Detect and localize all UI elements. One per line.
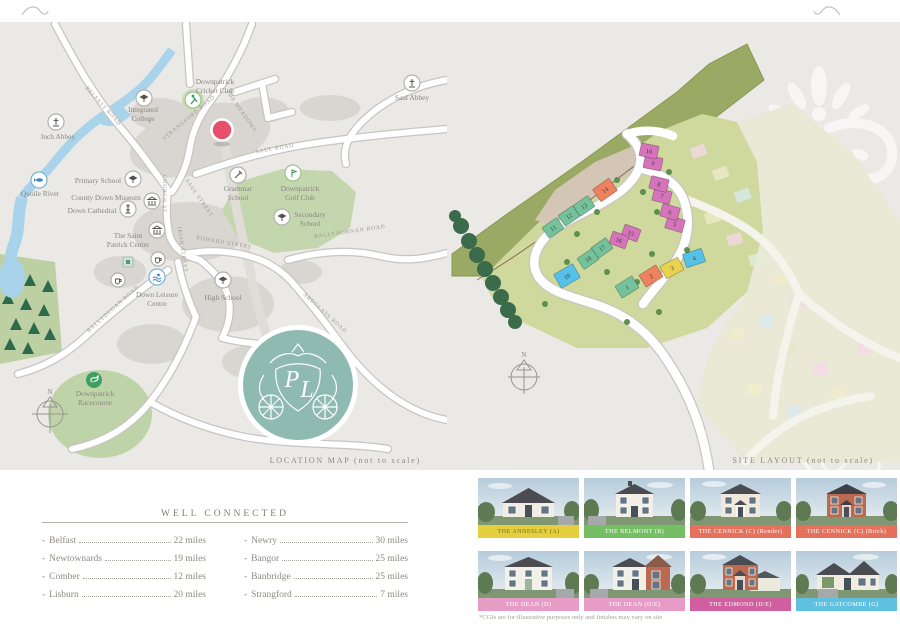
distance-column-left: - Belfast 22 miles - Newtownards 19 mile… [42, 532, 206, 604]
school-icon [136, 90, 152, 106]
house-type-label: THE GATCOMBE (G) [796, 598, 897, 611]
distance-row: - Newtownards 19 miles [42, 550, 206, 568]
house-render-image [584, 478, 685, 525]
house-render-image [796, 551, 897, 598]
svg-text:Down Cathedral: Down Cathedral [68, 206, 117, 215]
svg-text:Secondary: Secondary [294, 210, 325, 219]
distance-row: - Belfast 22 miles [42, 532, 206, 550]
svg-text:Racecourse: Racecourse [78, 398, 113, 407]
distance-value: 7 miles [380, 586, 408, 604]
place-name: Newtownards [49, 550, 102, 568]
svg-text:Golf Club: Golf Club [285, 193, 315, 202]
house-type-label: THE BELMONT (B) [584, 525, 685, 538]
distance-row: - Banbridge 25 miles [244, 568, 408, 586]
house-render-image [584, 551, 685, 598]
place-name: Newry [251, 532, 277, 550]
distance-row: - Strangford 7 miles [244, 586, 408, 604]
svg-text:Inch Abbey: Inch Abbey [41, 132, 76, 141]
horse-icon [86, 372, 102, 388]
house-types-grid: THE ANNESLEY (A) THE BELMONT (B) [478, 478, 897, 611]
distance-value: 25 miles [376, 568, 408, 586]
distance-value: 20 miles [174, 586, 206, 604]
svg-text:L: L [299, 377, 313, 403]
svg-text:County Down Museum: County Down Museum [71, 193, 141, 202]
house-type-card-cennick-render: THE CENNICK (C) (Render) [690, 478, 791, 538]
svg-text:Downpatrick: Downpatrick [76, 389, 115, 398]
swim-icon [149, 269, 165, 285]
golf-icon [285, 165, 301, 181]
distance-value: 25 miles [376, 550, 408, 568]
place-name: Comber [49, 568, 80, 586]
house-type-card-annesley: THE ANNESLEY (A) [478, 478, 579, 538]
fish-icon [31, 172, 47, 188]
school-icon [125, 171, 141, 187]
house-render-image [478, 478, 579, 525]
svg-text:The Saint: The Saint [114, 231, 143, 240]
svg-text:Saul Abbey: Saul Abbey [395, 93, 430, 102]
distance-column-right: - Newry 30 miles - Bangor 25 miles - Ban… [244, 532, 408, 604]
svg-text:Patrick Centre: Patrick Centre [107, 240, 150, 249]
place-name: Banbridge [251, 568, 291, 586]
svg-text:P: P [284, 367, 300, 393]
svg-text:Downpatrick: Downpatrick [196, 77, 235, 86]
svg-text:N: N [47, 388, 52, 396]
cgi-disclaimer: *CGIs are for illustrative purposes only… [479, 614, 662, 621]
compass-rose: N [508, 351, 540, 394]
dotted-leader [282, 560, 372, 561]
house-type-card-gatcombe: THE GATCOMBE (G) [796, 551, 897, 611]
distance-row: - Bangor 25 miles [244, 550, 408, 568]
svg-text:School: School [300, 219, 321, 228]
brochure-page: BELFAST ROAD STRANGFORD ROAD SAUL ROAD T… [0, 0, 900, 635]
svg-text:Grammar: Grammar [224, 184, 253, 193]
svg-text:Downpatrick: Downpatrick [281, 184, 320, 193]
svg-text:Centre: Centre [147, 299, 167, 308]
abbey-icon [404, 75, 420, 91]
house-type-card-cennick-brick: THE CENNICK (C) (Brick) [796, 478, 897, 538]
distance-value: 30 miles [376, 532, 408, 550]
distance-row: - Lisburn 20 miles [42, 586, 206, 604]
house-type-card-dean-d: THE DEAN (D) [478, 551, 579, 611]
distance-row: - Comber 12 miles [42, 568, 206, 586]
house-type-label: THE CENNICK (C) (Brick) [796, 525, 897, 538]
house-type-label: THE EDMOND (D/E) [690, 598, 791, 611]
house-type-card-dean-de: THE DEAN (D/E) [584, 551, 685, 611]
distance-value: 19 miles [174, 550, 206, 568]
svg-text:Cricket Club: Cricket Club [196, 86, 234, 95]
gallery-icon [123, 257, 133, 267]
house-render-image [478, 551, 579, 598]
place-name: Lisburn [49, 586, 79, 604]
quoile-widening [0, 258, 25, 298]
svg-text:Primary School: Primary School [75, 176, 121, 185]
dotted-leader [82, 596, 171, 597]
place-name: Bangor [251, 550, 279, 568]
place-name: Strangford [251, 586, 292, 604]
school-icon [274, 209, 290, 225]
cafe-icon [151, 252, 165, 266]
dotted-leader [79, 542, 170, 543]
site-layout-caption: SITE LAYOUT (not to scale) [733, 456, 874, 465]
museum-icon [144, 193, 160, 209]
corner-flourish-icon [20, 3, 50, 19]
svg-text:CHURCH ST: CHURCH ST [161, 175, 167, 213]
house-type-label: THE DEAN (D) [478, 598, 579, 611]
place-name: Belfast [49, 532, 76, 550]
cathedral-icon [120, 201, 136, 217]
house-render-image [796, 478, 897, 525]
divider [42, 522, 408, 523]
distance-row: - Newry 30 miles [244, 532, 408, 550]
school-icon [215, 272, 231, 288]
svg-text:School: School [228, 193, 249, 202]
location-map: BELFAST ROAD STRANGFORD ROAD SAUL ROAD T… [0, 22, 447, 470]
svg-text:Quoile River: Quoile River [21, 189, 60, 198]
dotted-leader [294, 578, 373, 579]
distance-value: 22 miles [174, 532, 206, 550]
well-connected-section: WELL CONNECTED - Belfast 22 miles - Newt… [42, 509, 408, 604]
house-render-image [690, 478, 791, 525]
svg-text:Down Leisure: Down Leisure [136, 290, 179, 299]
corner-flourish-icon [812, 3, 842, 19]
house-type-label: THE DEAN (D/E) [584, 598, 685, 611]
dotted-leader [295, 596, 377, 597]
house-type-card-edmond: THE EDMOND (D/E) [690, 551, 791, 611]
development-logo: P L [238, 325, 358, 445]
svg-text:High School: High School [204, 293, 241, 302]
svg-text:Integrated: Integrated [128, 105, 158, 114]
house-type-label: THE CENNICK (C) (Render) [690, 525, 791, 538]
heritage-icon [149, 222, 165, 238]
dotted-leader [83, 578, 171, 579]
location-map-panel: BELFAST ROAD STRANGFORD ROAD SAUL ROAD T… [0, 22, 447, 470]
house-type-label: THE ANNESLEY (A) [478, 525, 579, 538]
house-render-image [690, 551, 791, 598]
site-layout: 1 2 3 4 5 6 7 [447, 22, 900, 470]
well-connected-title: WELL CONNECTED [42, 509, 408, 519]
dotted-leader [280, 542, 373, 543]
abbey-icon [48, 114, 64, 130]
location-map-caption: LOCATION MAP (not to scale) [270, 456, 421, 465]
cafe-icon [111, 273, 125, 287]
dotted-leader [105, 560, 171, 561]
svg-text:BALLYDUGAN ROAD: BALLYDUGAN ROAD [86, 284, 140, 334]
svg-text:N: N [521, 351, 526, 359]
site-layout-panel: 1 2 3 4 5 6 7 [447, 22, 900, 470]
svg-text:College: College [132, 114, 156, 123]
school-icon [230, 167, 246, 183]
distance-value: 12 miles [174, 568, 206, 586]
house-type-card-belmont: THE BELMONT (B) [584, 478, 685, 538]
